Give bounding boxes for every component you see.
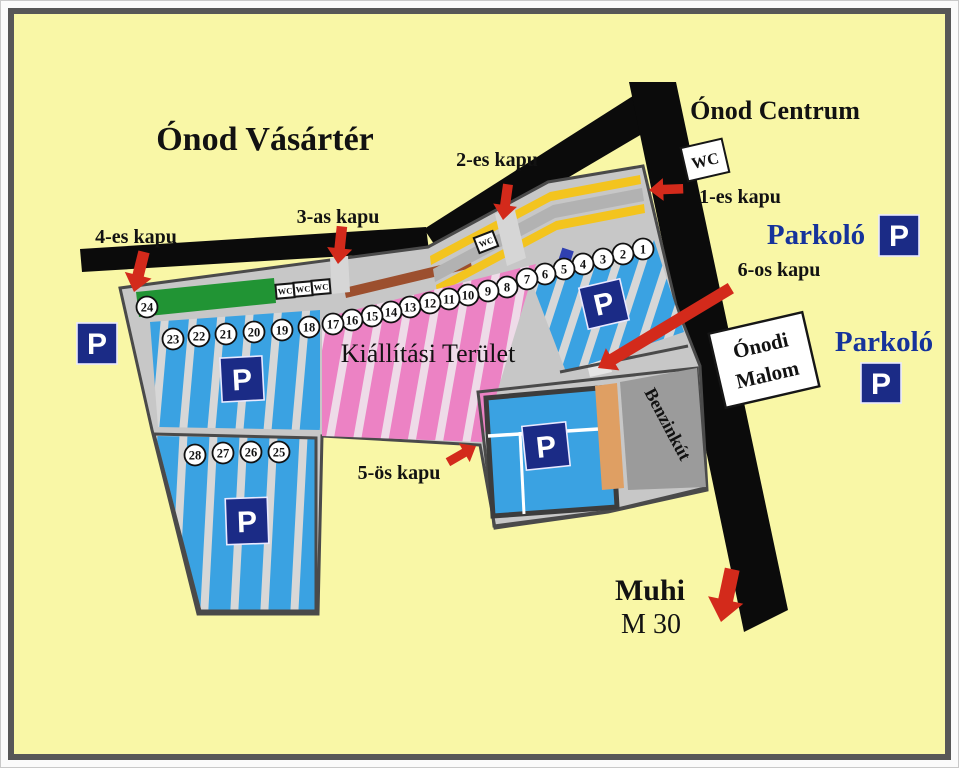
- stall-number: 23: [167, 332, 180, 346]
- parking-sign-outer-west: P: [77, 323, 117, 364]
- parking-symbol: P: [871, 368, 891, 401]
- parking-sign-lot: P: [522, 422, 570, 470]
- stall-number: 12: [424, 296, 437, 310]
- stall-number: 11: [443, 292, 455, 306]
- gate-6-label: 6-os kapu: [738, 259, 821, 281]
- parking-symbol: P: [236, 506, 257, 540]
- stall-number: 9: [485, 284, 491, 298]
- parking-symbol: P: [534, 430, 557, 465]
- stall-number: 8: [504, 280, 510, 294]
- stall-number: 13: [404, 300, 417, 314]
- parking-label-southeast: Parkoló: [835, 326, 933, 358]
- m30-label: M 30: [621, 609, 681, 640]
- gate-5-label: 5-ös kapu: [358, 462, 441, 484]
- stall-number: 28: [189, 448, 202, 462]
- stall-number: 24: [141, 300, 154, 314]
- parking-symbol: P: [231, 363, 253, 397]
- exhibition-area-label: Kiállítási Terület: [341, 339, 516, 368]
- gate-1-label: 1-es kapu: [699, 186, 781, 208]
- stall-number: 1: [640, 242, 646, 256]
- stall-number: 22: [193, 329, 206, 343]
- stall-number: 5: [561, 262, 567, 276]
- stall-number: 19: [276, 323, 289, 337]
- onod-market-map: WC WC WC WC WC P P P P P P P: [0, 0, 959, 768]
- stall-number: 16: [346, 313, 359, 327]
- stall-number: 25: [273, 445, 286, 459]
- stall-number: 27: [217, 446, 230, 460]
- parking-sign-southeast: P: [861, 363, 901, 403]
- gate-4-label: 4-es kapu: [95, 226, 177, 248]
- wc-box-2: WC: [293, 281, 312, 297]
- stall-number: 21: [220, 327, 233, 341]
- parking-sign-southwest: P: [225, 497, 269, 544]
- centrum-label: Ónod Centrum: [690, 96, 860, 125]
- parking-symbol: P: [889, 220, 909, 253]
- map-title: Ónod Vásártér: [156, 120, 374, 158]
- stall-number: 7: [524, 272, 530, 286]
- stall-number: 10: [462, 288, 475, 302]
- muhi-label: Muhi: [615, 574, 685, 607]
- parking-sign-northeast: P: [879, 215, 919, 256]
- stall-number: 2: [620, 247, 626, 261]
- wc-box-3: WC: [311, 279, 330, 295]
- parking-label-northeast: Parkoló: [767, 219, 865, 251]
- stall-number: 20: [248, 325, 261, 339]
- stall-number: 6: [542, 267, 548, 281]
- gate-2-label: 2-es kapu: [456, 149, 538, 171]
- stall-number: 26: [245, 445, 258, 459]
- wc-label: WC: [277, 285, 292, 296]
- parking-sign-east: P: [579, 279, 629, 329]
- wc-label: WC: [313, 281, 328, 292]
- market-map-page: WC WC WC WC WC P P P P P P P: [0, 0, 959, 768]
- stall-number: 14: [385, 305, 398, 319]
- stall-number: 17: [327, 317, 340, 331]
- stall-number: 15: [366, 309, 379, 323]
- wc-box-1: WC: [275, 283, 294, 299]
- parking-sign-west: P: [220, 356, 264, 402]
- stall-number: 3: [600, 252, 606, 266]
- stall-number: 18: [303, 320, 316, 334]
- stall-number: 4: [580, 257, 587, 271]
- gate-3-label: 3-as kapu: [297, 206, 380, 228]
- wc-label: WC: [295, 283, 310, 294]
- parking-symbol: P: [87, 328, 107, 361]
